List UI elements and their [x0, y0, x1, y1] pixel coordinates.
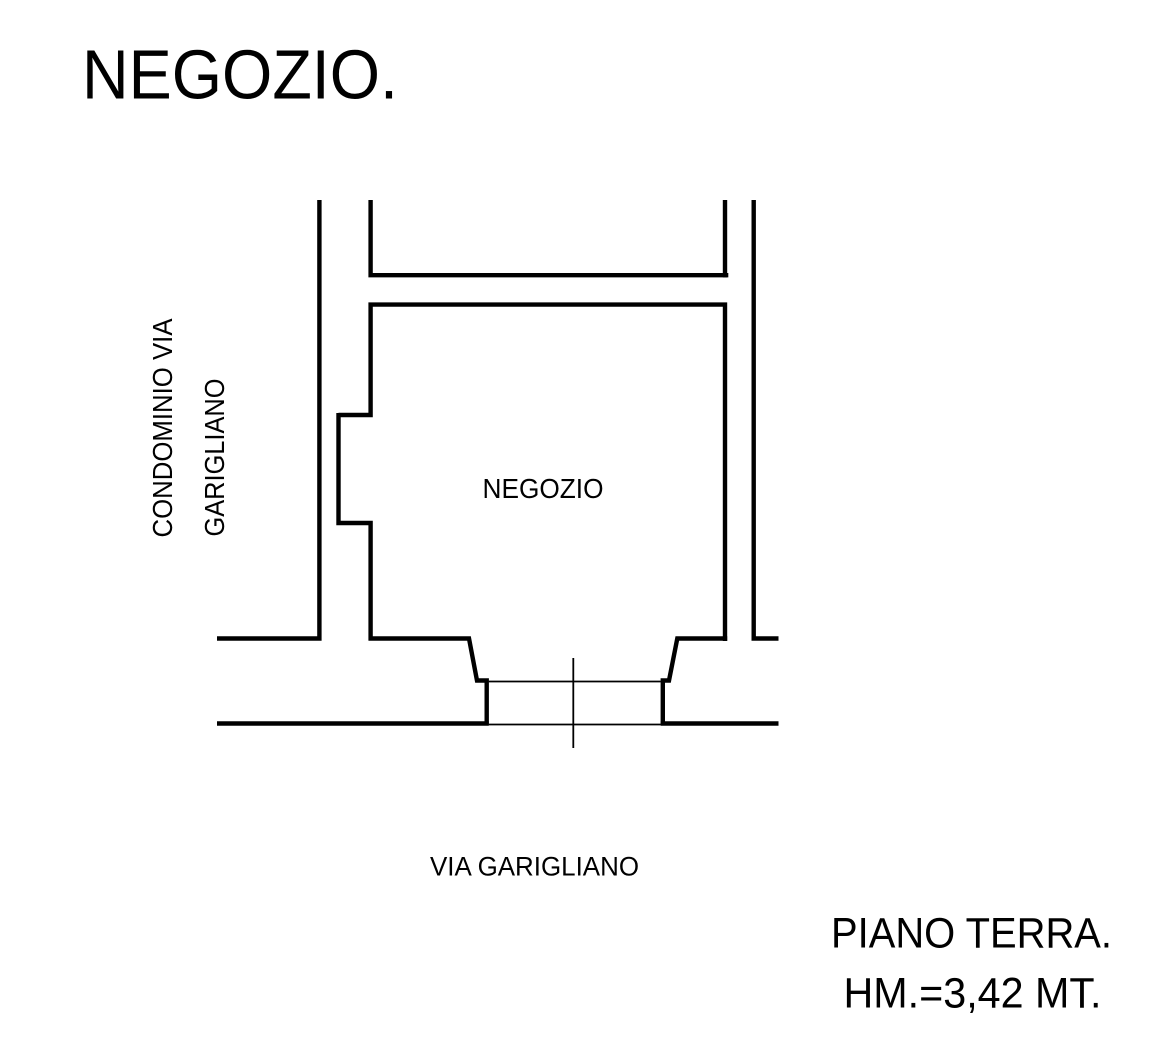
svg-text:CONDOMINIO VIA: CONDOMINIO VIA: [147, 318, 178, 537]
svg-text:VIA GARIGLIANO: VIA GARIGLIANO: [430, 852, 639, 882]
svg-text:PIANO TERRA.: PIANO TERRA.: [831, 910, 1112, 958]
svg-text:NEGOZIO: NEGOZIO: [483, 473, 604, 504]
svg-text:NEGOZIO.: NEGOZIO.: [82, 36, 398, 114]
svg-text:HM.=3,42 MT.: HM.=3,42 MT.: [844, 970, 1102, 1018]
svg-text:GARIGLIANO: GARIGLIANO: [199, 379, 230, 537]
